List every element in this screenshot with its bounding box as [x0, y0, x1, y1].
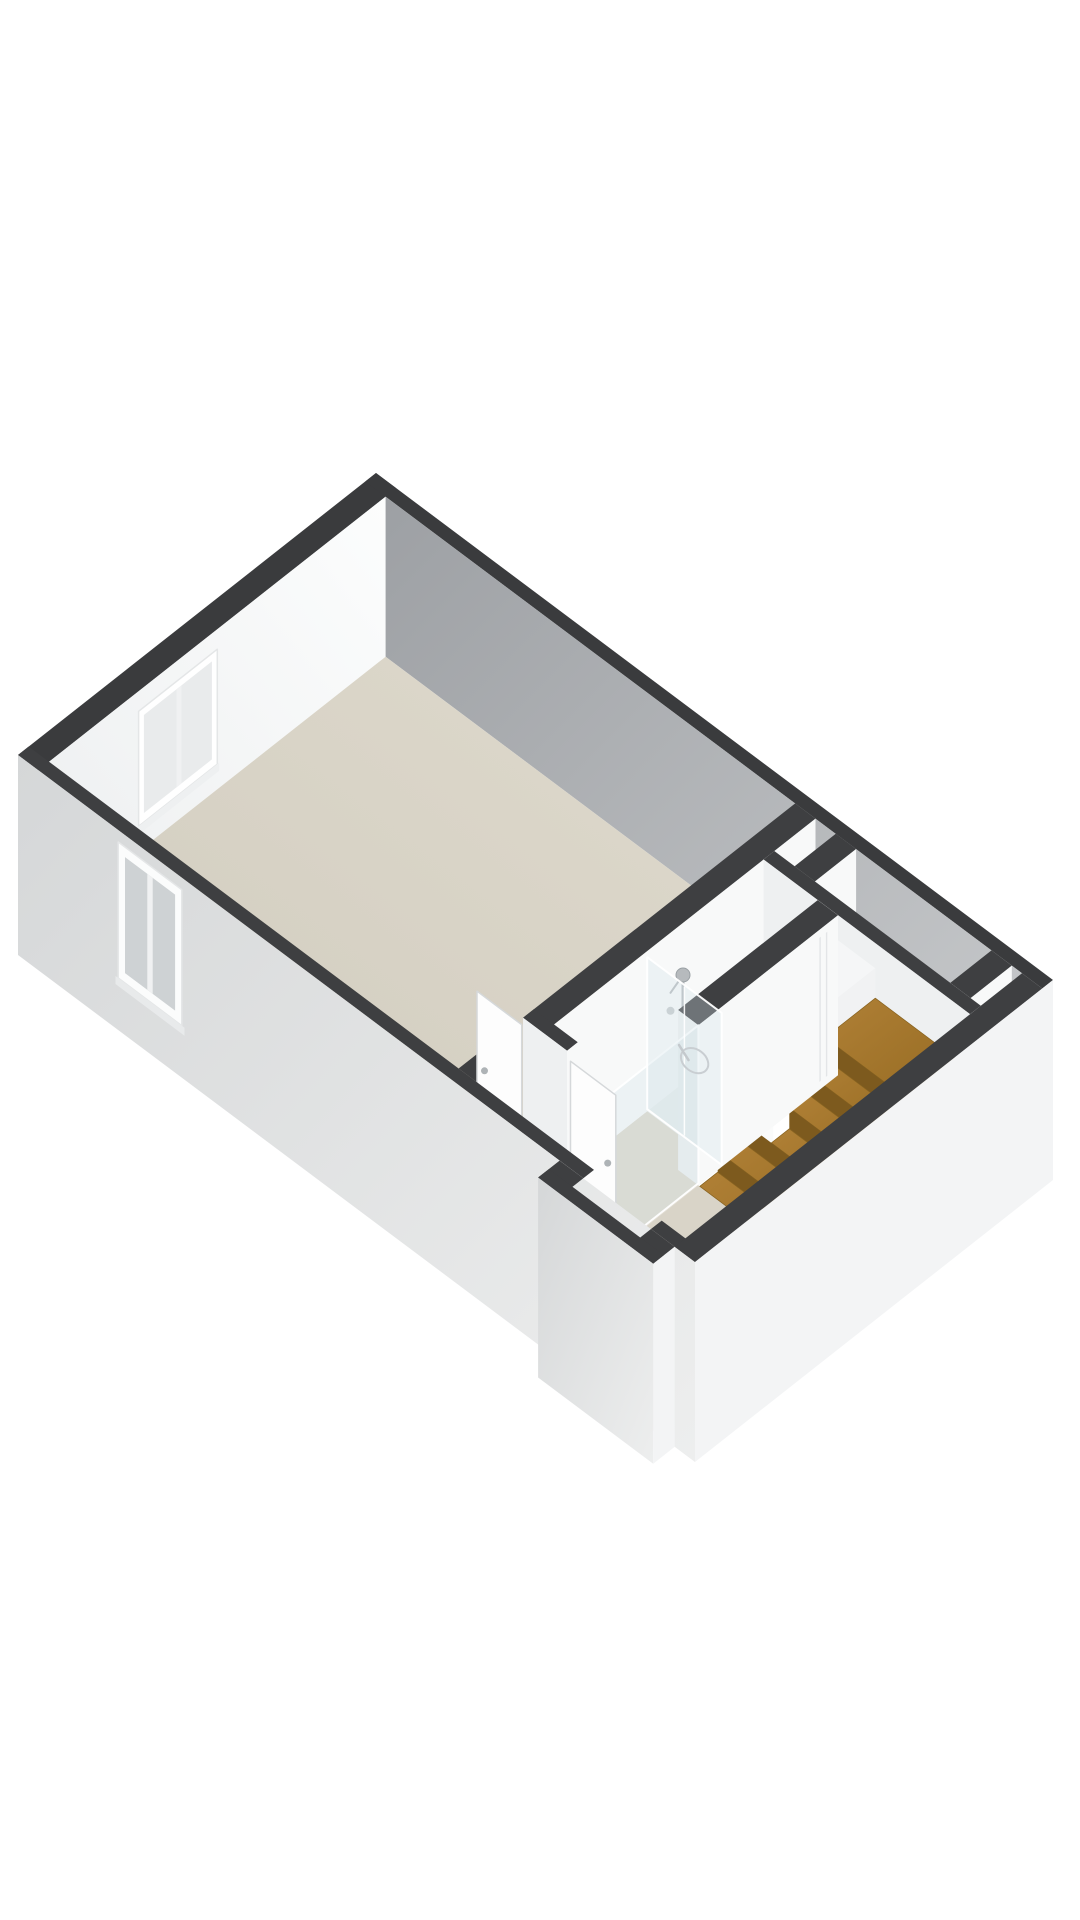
exterior-window-mullion [147, 874, 152, 994]
door-handle [604, 1160, 611, 1167]
exterior-wall-entry-side [653, 1247, 675, 1464]
stairwell-door-frame-line [819, 937, 820, 1082]
stairwell-door-frame-line [826, 932, 827, 1077]
inner-window-mullion [177, 685, 182, 787]
door-handle [481, 1067, 488, 1074]
floorplan-3d-render [0, 0, 1080, 1920]
